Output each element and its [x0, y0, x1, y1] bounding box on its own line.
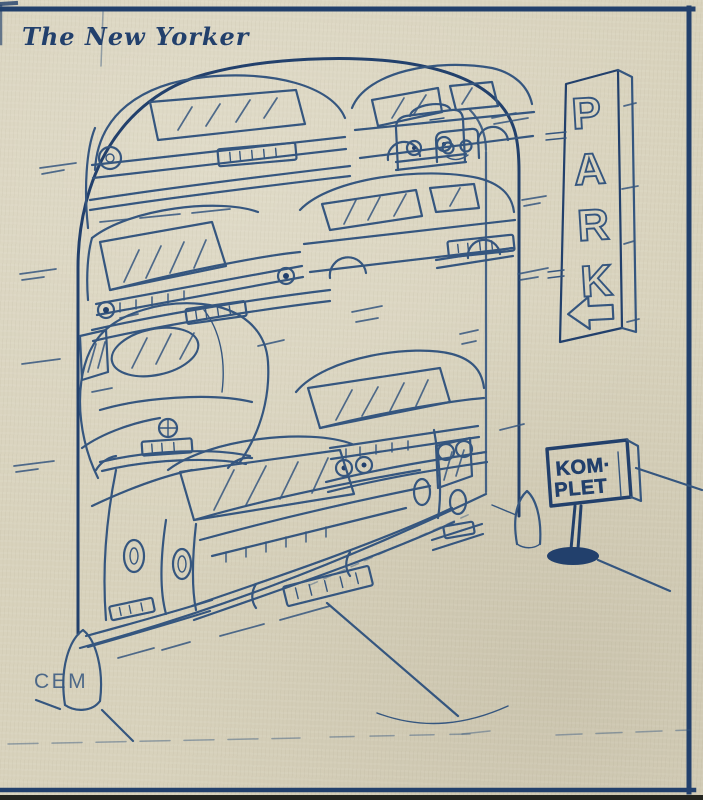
park-sign-letter: R	[576, 200, 611, 251]
park-sign-letter: A	[572, 144, 607, 195]
parked-cars	[80, 65, 534, 658]
publication-title: The New Yorker	[22, 22, 251, 51]
full-sign-line2: PLET	[554, 475, 609, 502]
street-markings	[8, 603, 690, 744]
sign-stand	[547, 506, 599, 565]
car	[300, 173, 515, 278]
komplet-sign: KOM· PLET	[547, 440, 702, 591]
cartoon-panel: The New Yorker	[0, 0, 703, 800]
scan-edge	[0, 795, 703, 800]
artist-signature: CEM	[34, 670, 88, 693]
park-sign-letter: P	[570, 88, 602, 139]
car	[80, 303, 268, 478]
car	[87, 206, 330, 341]
park-sign: P A R K	[546, 70, 636, 342]
cartoon-drawing: The New Yorker	[0, 0, 703, 800]
car	[162, 436, 455, 636]
wall-hatch-marks	[14, 103, 639, 472]
